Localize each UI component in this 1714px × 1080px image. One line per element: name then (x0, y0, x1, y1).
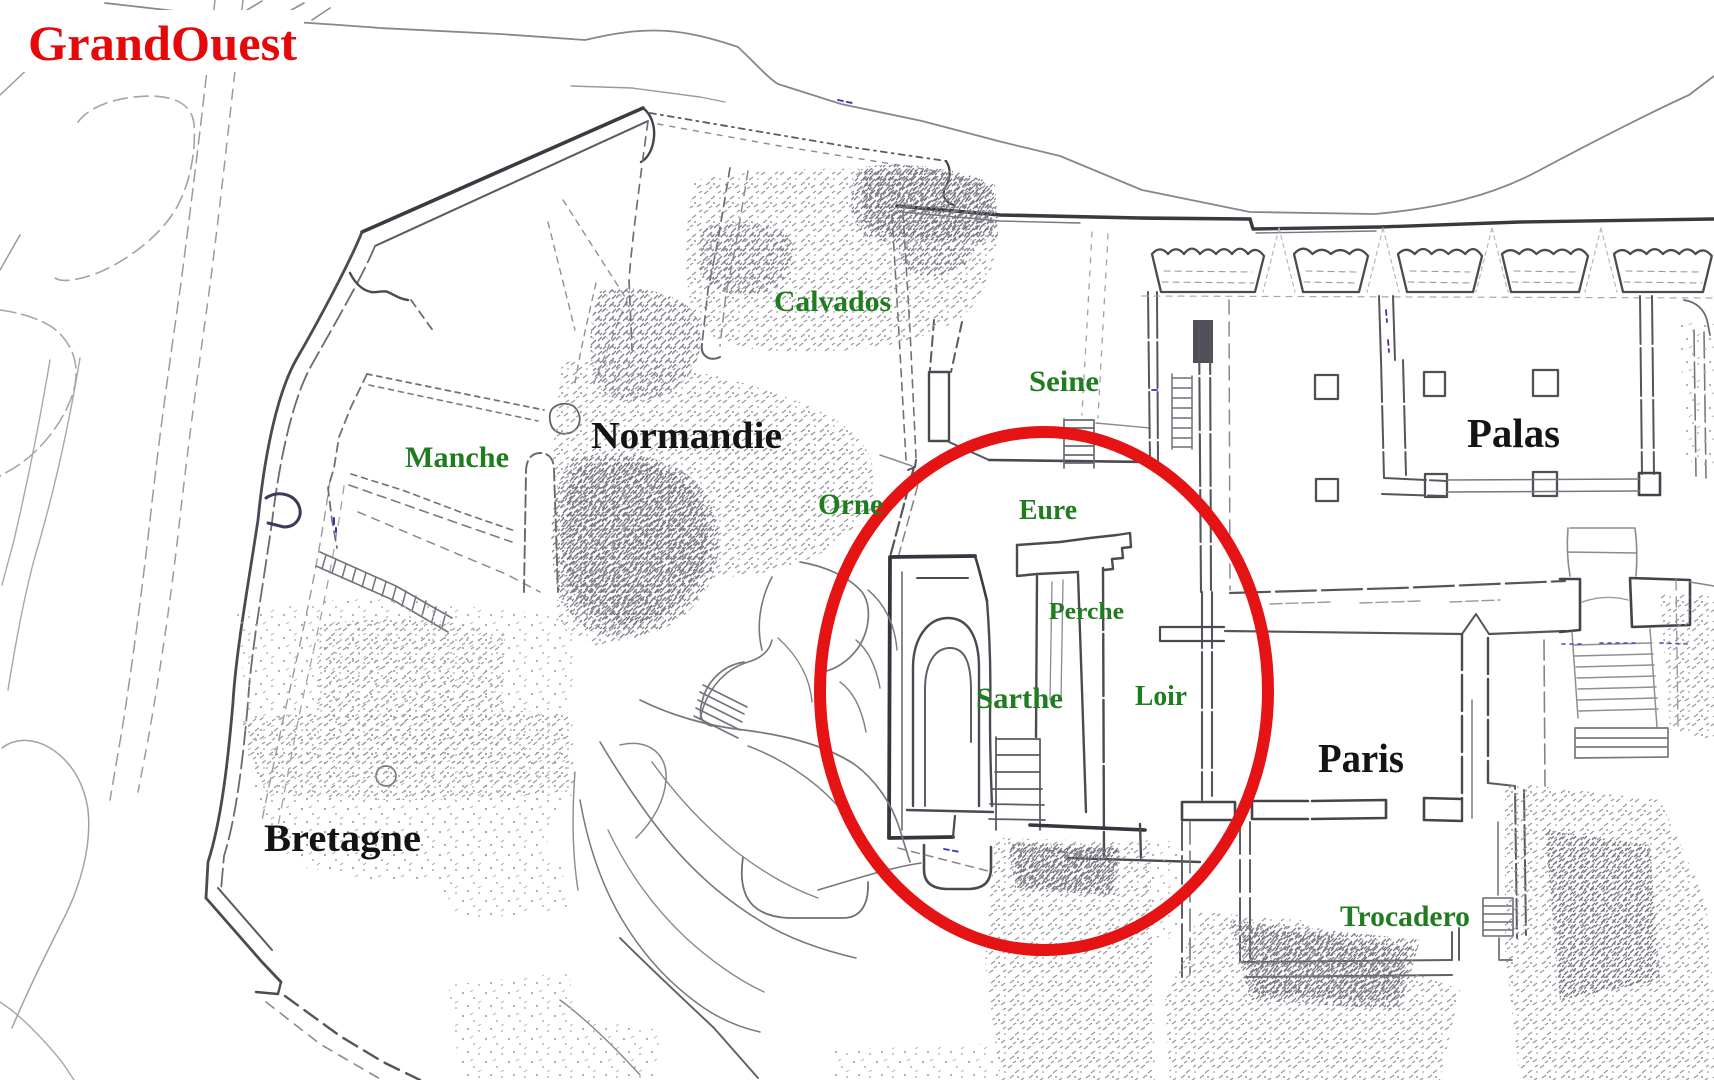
svg-text:GrandOuest: GrandOuest (28, 15, 297, 71)
svg-text:Perche: Perche (1049, 599, 1124, 625)
svg-text:Orne: Orne (818, 488, 883, 521)
svg-text:Palas: Palas (1467, 410, 1560, 456)
svg-text:Trocadero: Trocadero (1340, 900, 1470, 933)
svg-text:Bretagne: Bretagne (264, 817, 421, 860)
svg-text:Normandie: Normandie (591, 415, 782, 457)
svg-text:Sarthe: Sarthe (976, 682, 1063, 715)
svg-text:Calvados: Calvados (774, 285, 891, 318)
svg-text:Paris: Paris (1318, 735, 1404, 781)
svg-text:Loir: Loir (1135, 680, 1187, 712)
svg-text:Eure: Eure (1019, 494, 1077, 526)
svg-text:Seine: Seine (1029, 365, 1099, 398)
svg-text:Manche: Manche (405, 441, 509, 474)
